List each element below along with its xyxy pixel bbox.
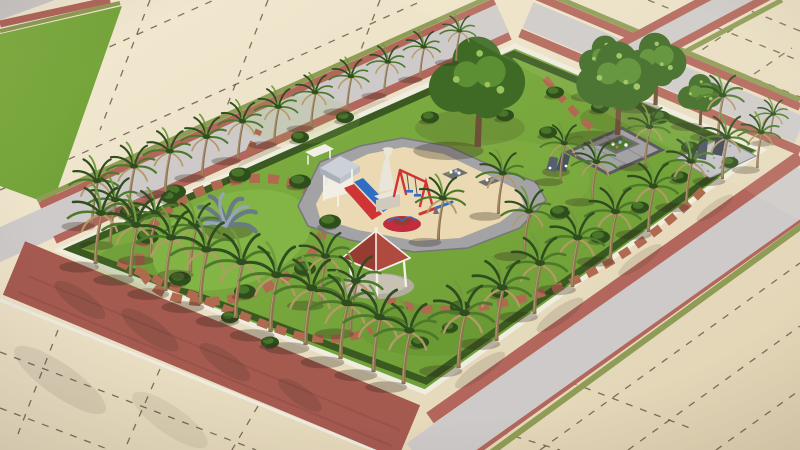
render-canvas: [0, 0, 800, 450]
park-render-scene: Isometric 3D architectural rendering of …: [0, 0, 800, 450]
